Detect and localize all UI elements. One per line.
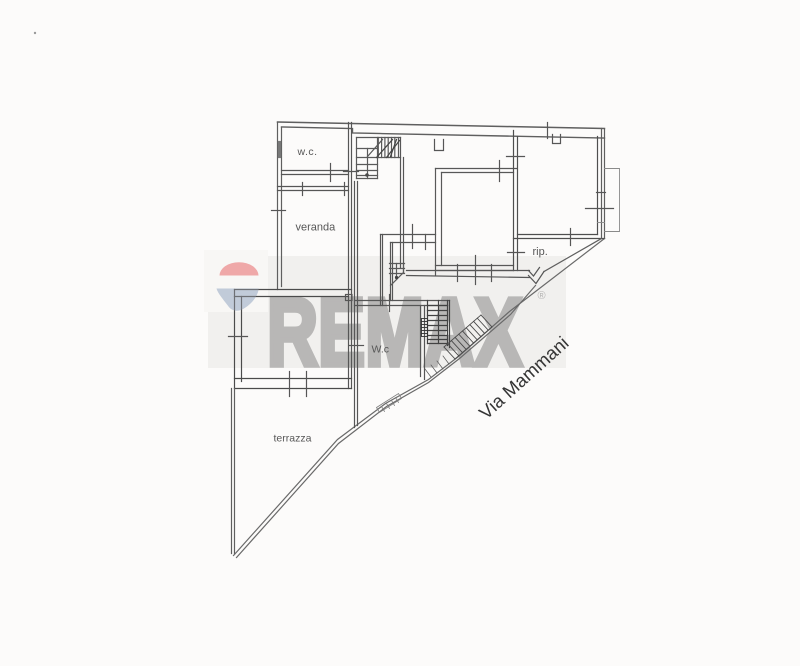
svg-text:rip.: rip.: [533, 246, 548, 258]
svg-text:®: ®: [538, 290, 546, 302]
svg-text:terrazza: terrazza: [274, 433, 312, 445]
svg-text:W.c: W.c: [372, 344, 390, 356]
svg-text:veranda: veranda: [296, 222, 337, 234]
svg-text:w.c.: w.c.: [297, 146, 318, 158]
